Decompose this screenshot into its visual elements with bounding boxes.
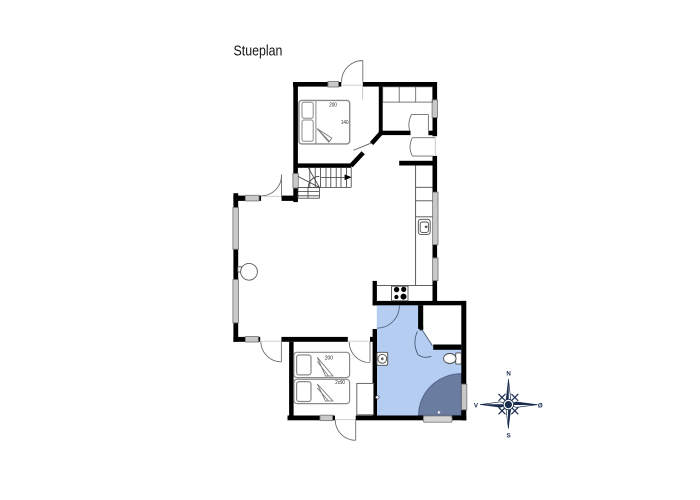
svg-text:2x90: 2x90 [335, 380, 345, 386]
svg-text:200: 200 [325, 356, 333, 362]
svg-text:S: S [507, 433, 511, 440]
svg-text:N: N [506, 370, 511, 377]
svg-text:140: 140 [341, 120, 349, 126]
svg-text:Ø: Ø [538, 403, 543, 410]
svg-text:Stueplan: Stueplan [234, 43, 283, 60]
svg-text:200: 200 [329, 102, 337, 108]
svg-text:V: V [474, 402, 479, 409]
